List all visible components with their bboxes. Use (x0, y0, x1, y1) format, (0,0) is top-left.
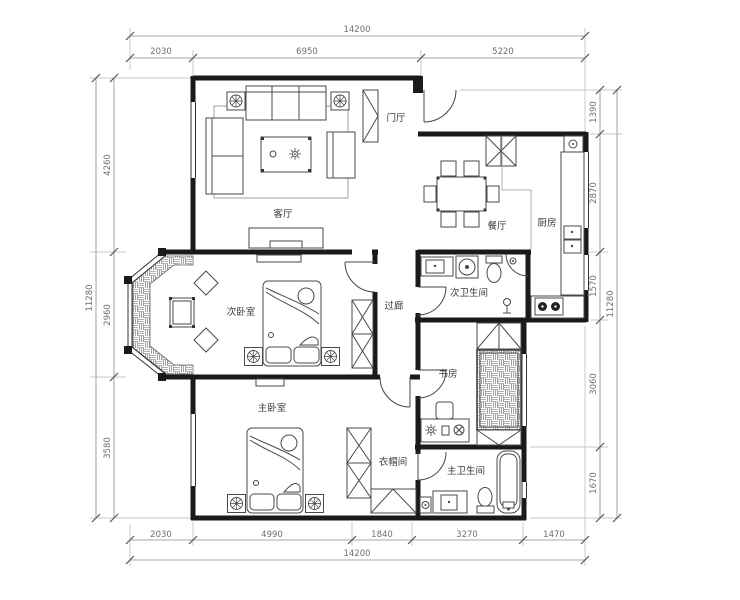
study-cabinet-top (477, 323, 521, 349)
wardrobe-closet-vertical (347, 428, 371, 498)
tatami-bed (477, 350, 521, 430)
wardrobe-bedroom2 (352, 300, 373, 368)
dim-right-seg0: 1390 (589, 101, 599, 123)
shoe-cabinet (363, 90, 378, 142)
tv-master (256, 379, 284, 386)
bedroom2-door (345, 262, 375, 292)
room-label-bath2: 次卫生间 (450, 287, 488, 299)
study-cabinet-bottom (477, 430, 521, 445)
room-label-master-bath: 主卫生间 (447, 465, 485, 477)
room-label-master: 主卧室 (258, 402, 287, 414)
dim-top-seg0: 2030 (150, 47, 172, 57)
dim-right-seg3: 3060 (589, 373, 599, 395)
dim-top-seg2: 5220 (492, 47, 514, 57)
toilet-master (477, 488, 494, 514)
vanity-sink (421, 257, 453, 276)
kitchen-counter (561, 152, 584, 295)
dining-chair (441, 212, 456, 227)
dim-bottom-seg3: 3270 (456, 530, 478, 540)
bathtub (497, 451, 520, 513)
dim-top-seg1: 6950 (296, 47, 318, 57)
mop-pool (420, 497, 431, 513)
corner-shower (506, 254, 528, 276)
tv-bedroom2 (257, 255, 301, 262)
washing-machine (456, 256, 478, 278)
room-label-living: 客厅 (273, 208, 293, 220)
room-label-kitchen: 厨房 (537, 217, 556, 229)
dim-left-total: 11280 (85, 284, 95, 311)
square-table (169, 297, 195, 328)
dining-chair (464, 161, 479, 176)
coffee-table (261, 137, 311, 172)
dim-bottom-seg2: 1840 (371, 530, 393, 540)
sofa-three-seat (246, 86, 326, 120)
furniture-bedroom2 (169, 255, 373, 368)
dim-left-seg0: 4260 (103, 154, 113, 176)
entry-door (424, 90, 456, 122)
fridge (564, 226, 581, 253)
study-window (522, 354, 527, 426)
stove (535, 298, 563, 315)
room-label-study: 书房 (438, 368, 457, 380)
furniture-study (421, 323, 521, 445)
floor-drain (503, 299, 511, 314)
dining-table (437, 177, 487, 212)
bath-window (522, 482, 527, 498)
floor-plan-page: 14200 2030 6950 5220 2030 4990 1840 3270… (0, 0, 740, 600)
room-label-corridor: 过廊 (384, 300, 404, 312)
dim-right-seg4: 1670 (589, 472, 599, 494)
sofa-two-seat (206, 118, 243, 194)
furniture-living (206, 86, 378, 248)
kitchen-sink (564, 136, 583, 152)
bath2-door (418, 287, 446, 315)
furniture-master-bath (420, 451, 520, 513)
floor-plan-canvas: 14200 2030 6950 5220 2030 4990 1840 3270… (0, 0, 740, 600)
master-window (191, 414, 196, 486)
living-window (191, 102, 196, 178)
diamond-deco (194, 271, 218, 295)
dim-right-seg2: 1570 (589, 275, 599, 297)
nightstand (322, 348, 340, 366)
dining-chair (424, 186, 436, 202)
armchair (327, 132, 355, 178)
kitchen-window-2 (584, 255, 589, 290)
master-bath-door (418, 452, 446, 480)
room-label-entry: 门厅 (386, 112, 406, 124)
bed2 (263, 281, 321, 366)
room-label-dining: 餐厅 (487, 220, 507, 232)
dim-bottom-seg1: 4990 (261, 530, 283, 540)
wardrobe-closet-bottom (371, 489, 416, 513)
room-label-bedroom2: 次卧室 (227, 306, 256, 318)
dim-left-seg1: 2960 (103, 304, 113, 326)
nightstand (306, 495, 324, 513)
dim-bottom-seg0: 2030 (150, 530, 172, 540)
dim-right-seg1: 2870 (589, 182, 599, 204)
room-label-closet: 衣帽间 (379, 456, 408, 468)
toilet (486, 256, 502, 283)
dining-chair (487, 186, 499, 202)
nightstand (228, 495, 246, 513)
nightstand (245, 348, 263, 366)
dim-top-total: 14200 (343, 25, 370, 35)
desk (421, 419, 469, 442)
kitchen-window-1 (584, 152, 589, 228)
dim-bottom-total: 14200 (343, 549, 370, 559)
desk-chair (436, 402, 453, 419)
vanity-master (433, 491, 467, 513)
master-bed (247, 428, 303, 513)
dim-bottom-seg4: 1470 (543, 530, 565, 540)
plant-table-left (227, 92, 245, 110)
furniture-master (228, 379, 324, 513)
diamond-deco (194, 328, 218, 352)
tv-cabinet (249, 228, 323, 248)
sideboard (486, 136, 516, 166)
furniture-closet (347, 428, 416, 513)
dining-chair (464, 212, 479, 227)
master-door (380, 377, 410, 407)
dining-chair (441, 161, 456, 176)
dim-right-total: 11280 (606, 290, 616, 317)
furniture-bath2 (421, 254, 528, 313)
dim-left-seg2: 3580 (103, 437, 113, 459)
plant-table-right (331, 92, 349, 110)
